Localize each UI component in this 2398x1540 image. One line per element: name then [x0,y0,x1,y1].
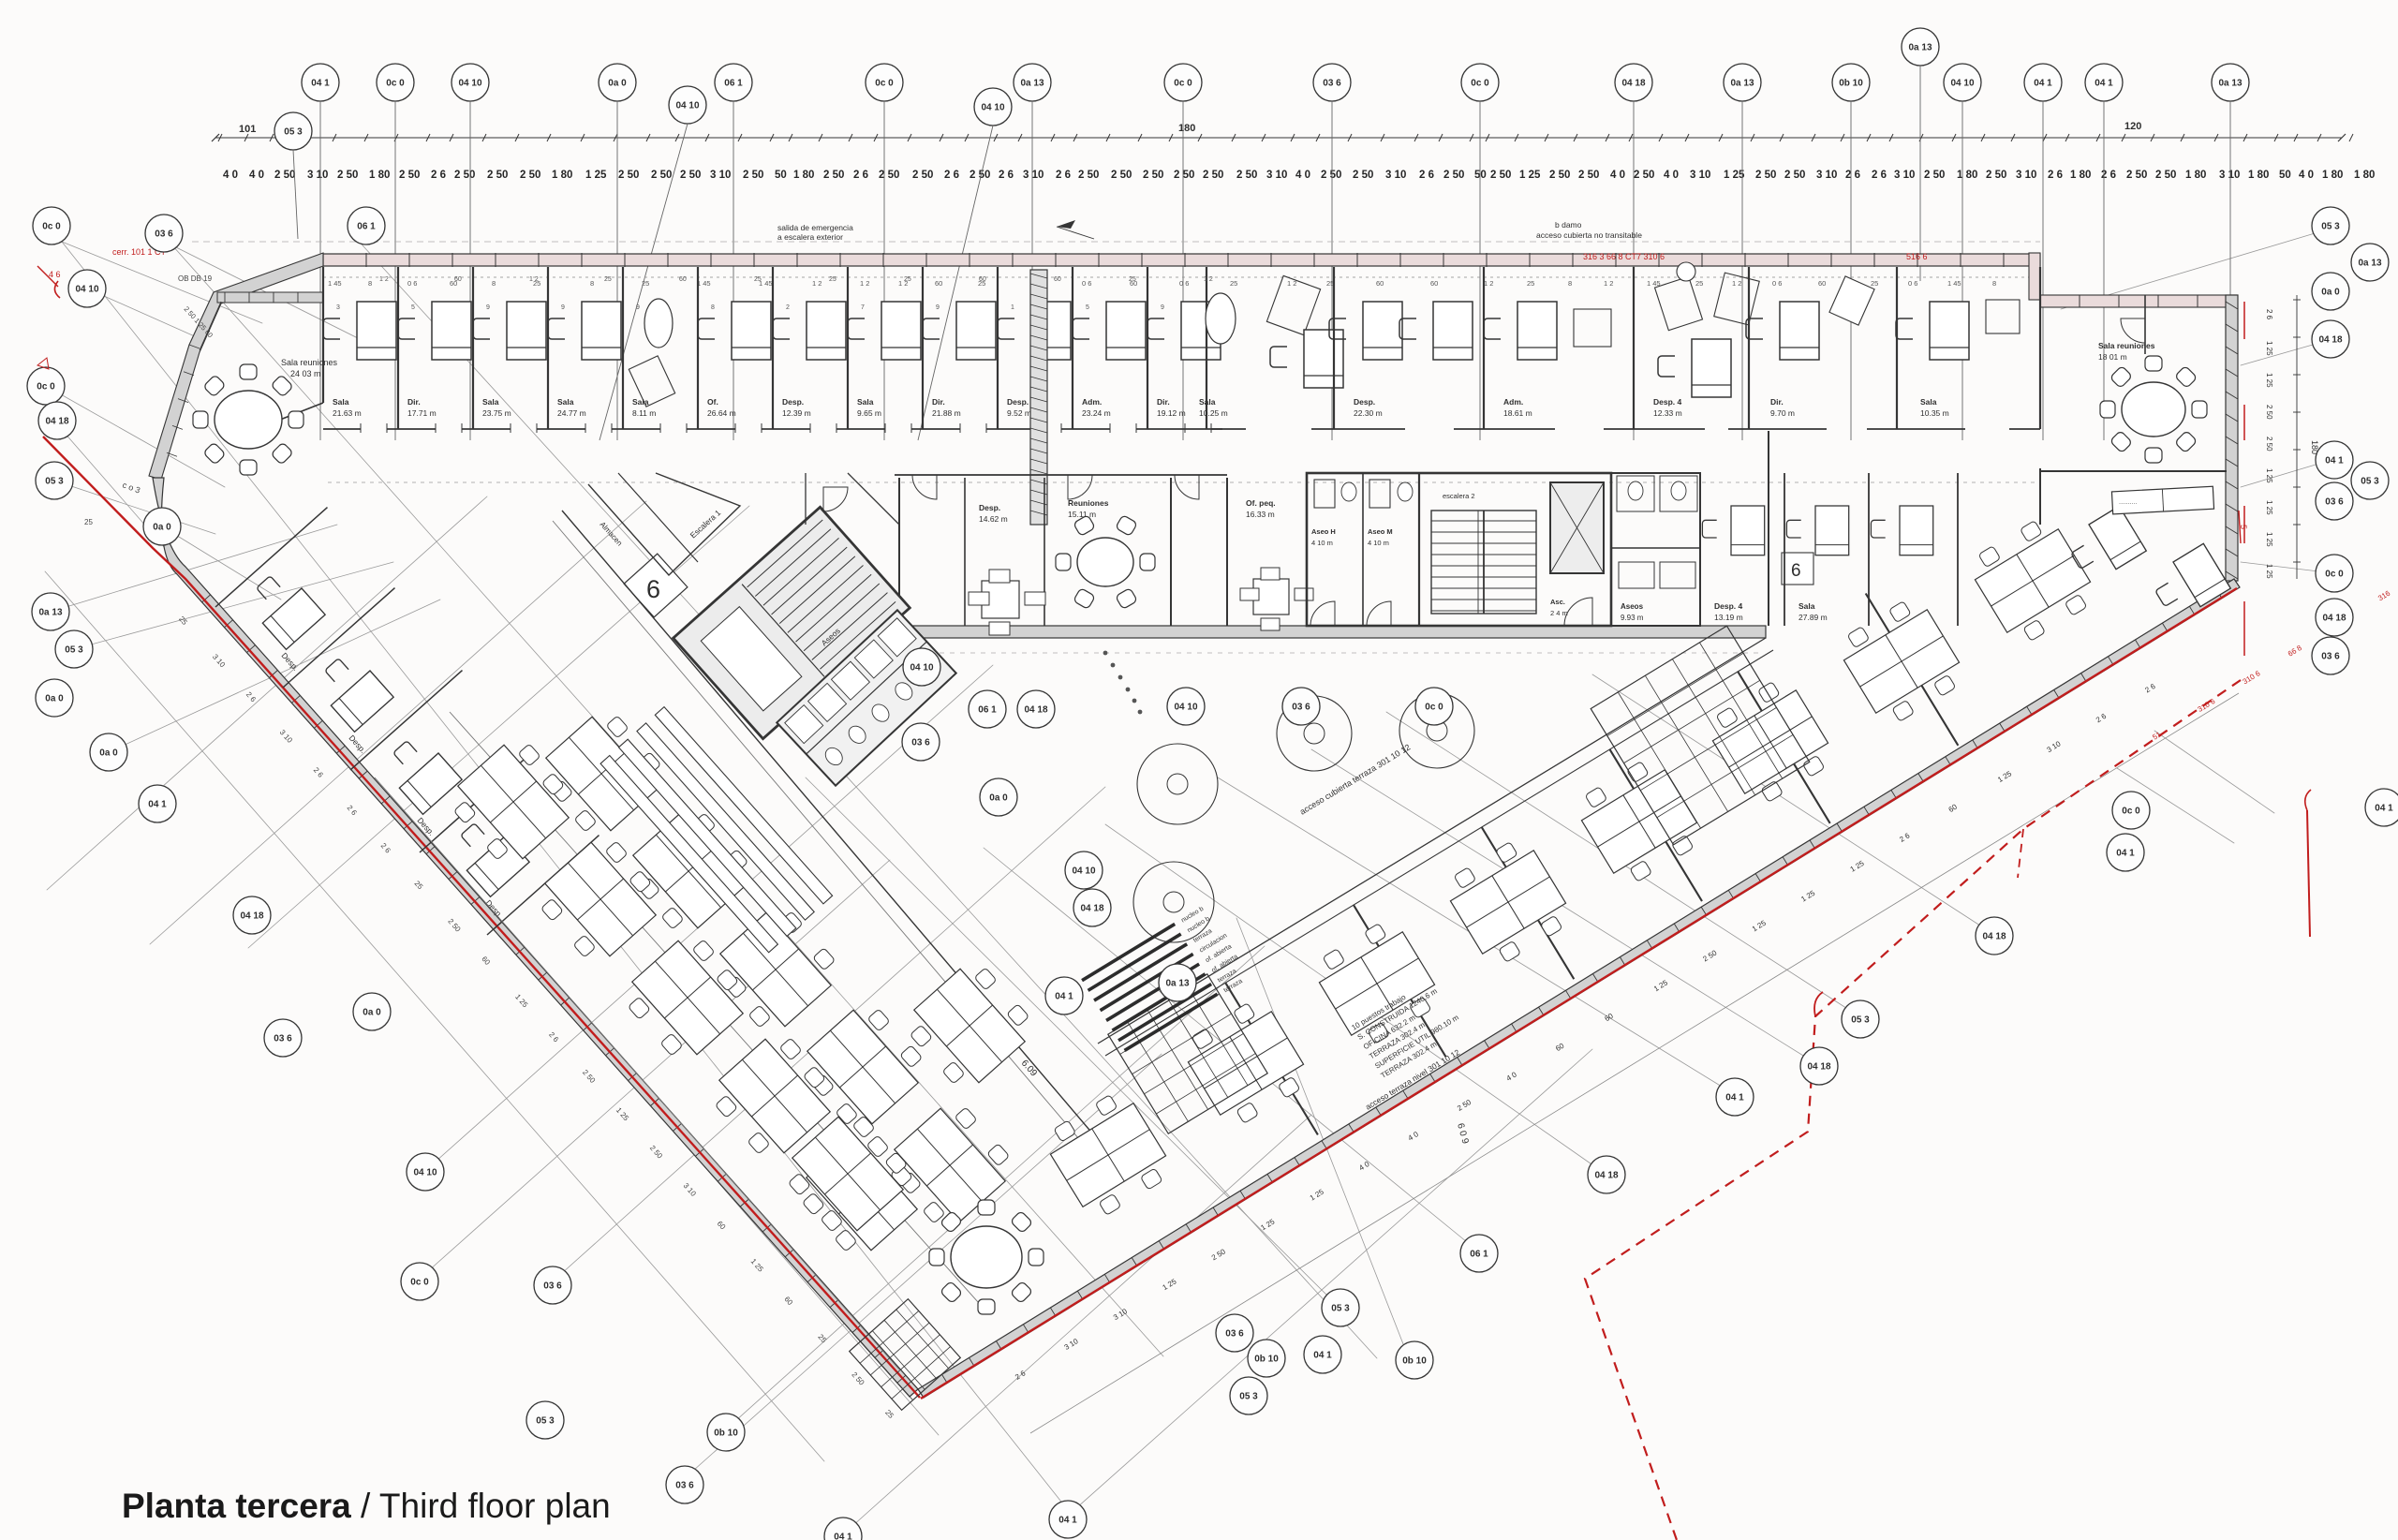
svg-text:03 6: 03 6 [2321,652,2340,662]
svg-text:2 50: 2 50 [879,170,899,181]
svg-text:27.89 m: 27.89 m [1798,613,1828,622]
svg-text:21.88 m: 21.88 m [932,408,961,418]
svg-text:Desp. 4: Desp. 4 [1653,397,1682,407]
svg-text:04 18: 04 18 [2318,335,2342,346]
svg-text:6: 6 [646,575,660,603]
svg-text:2: 2 [786,304,790,311]
svg-text:60: 60 [1054,276,1061,283]
svg-text:OB DB 19: OB DB 19 [178,274,213,283]
svg-text:60: 60 [935,279,942,288]
svg-text:Desp.: Desp. [782,397,804,407]
svg-text:19.12 m: 19.12 m [1157,408,1186,418]
svg-text:Aseo H: Aseo H [1311,527,1336,536]
svg-text:18 01 m: 18 01 m [2098,352,2127,362]
svg-text:2 6: 2 6 [431,170,446,181]
svg-text:17.71 m: 17.71 m [407,408,437,418]
svg-text:04 10: 04 10 [458,79,481,89]
svg-text:04 10: 04 10 [1174,703,1197,713]
svg-text:04 18: 04 18 [1080,904,1103,914]
svg-text:8: 8 [492,279,496,288]
svg-text:60: 60 [1376,279,1384,288]
svg-text:1 80: 1 80 [2185,170,2206,181]
svg-text:0c 0: 0c 0 [42,222,61,232]
svg-text:9.52 m: 9.52 m [1007,408,1031,418]
svg-text:04 10: 04 10 [675,101,699,111]
svg-text:04 10: 04 10 [1950,79,1974,89]
svg-text:05 3: 05 3 [65,645,83,656]
svg-text:25: 25 [1129,276,1136,283]
svg-text:2 50: 2 50 [2265,437,2273,452]
svg-text:05 3: 05 3 [2321,222,2340,232]
svg-text:05 3: 05 3 [1331,1304,1350,1314]
svg-text:2 50: 2 50 [1078,170,1099,181]
svg-text:04 18: 04 18 [1982,932,2006,942]
svg-text:03 6: 03 6 [1323,79,1341,89]
svg-text:0b 10: 0b 10 [1254,1355,1279,1365]
svg-text:23.75 m: 23.75 m [482,408,511,418]
svg-text:8: 8 [590,279,594,288]
svg-text:Sala: Sala [1199,397,1216,407]
svg-text:0c 0: 0c 0 [386,79,405,89]
svg-text:4 0: 4 0 [249,170,264,181]
svg-text:4 10 m: 4 10 m [1368,539,1389,547]
svg-text:Adm.: Adm. [1082,397,1102,407]
svg-text:Sala: Sala [1798,601,1815,611]
svg-text:2 6: 2 6 [1419,170,1434,181]
svg-text:2 50: 2 50 [399,170,420,181]
svg-text:14.62 m: 14.62 m [979,514,1008,524]
svg-text:04 10: 04 10 [981,103,1004,113]
svg-text:1 25: 1 25 [1519,170,1541,181]
svg-text:1 45: 1 45 [328,279,342,288]
svg-text:25: 25 [904,276,911,283]
svg-text:0a 13: 0a 13 [38,608,62,618]
svg-text:4 0: 4 0 [2299,170,2314,181]
svg-text:2 50: 2 50 [1755,170,1776,181]
svg-text:1 25: 1 25 [2265,500,2273,515]
svg-text:1 25: 1 25 [2265,468,2273,483]
svg-text:50: 50 [775,170,787,181]
svg-text:04 1: 04 1 [1725,1093,1744,1103]
svg-text:Desp. 4: Desp. 4 [1714,601,1743,611]
svg-text:Desp.: Desp. [1354,397,1375,407]
svg-text:25: 25 [604,276,612,283]
svg-text:2 6: 2 6 [2101,170,2116,181]
svg-text:Sala reuniones: Sala reuniones [281,358,338,367]
svg-text:Of.: Of. [707,397,718,407]
svg-text:1 25: 1 25 [1724,170,1745,181]
svg-text:1 80: 1 80 [2322,170,2343,181]
svg-text:2 50: 2 50 [2155,170,2176,181]
svg-text:9: 9 [561,304,565,311]
svg-text:Sala reuniones: Sala reuniones [2098,341,2155,350]
svg-text:Aseo M: Aseo M [1368,527,1393,536]
svg-text:9: 9 [486,304,490,311]
svg-text:60: 60 [1818,279,1826,288]
svg-text:1 25: 1 25 [585,170,607,181]
svg-text:101: 101 [239,124,256,135]
svg-text:9.65 m: 9.65 m [857,408,881,418]
svg-text:04 1: 04 1 [2034,79,2052,89]
svg-text:1 25: 1 25 [2265,373,2273,388]
svg-text:2 6: 2 6 [853,170,868,181]
svg-text:0a 13: 0a 13 [1730,79,1754,89]
svg-text:Asc.: Asc. [1550,598,1565,606]
svg-text:3 10: 3 10 [1894,170,1915,181]
svg-text:2 50: 2 50 [1443,170,1464,181]
svg-text:04 18: 04 18 [240,911,263,922]
svg-text:a escalera exterior: a escalera exterior [777,232,843,242]
svg-text:1 2: 1 2 [529,276,539,283]
svg-text:04 1: 04 1 [2116,849,2135,859]
svg-text:1 45: 1 45 [1947,279,1961,288]
svg-text:9: 9 [636,304,640,311]
svg-text:2 50: 2 50 [337,170,358,181]
svg-text:1 2: 1 2 [1484,279,1493,288]
svg-text:3 10: 3 10 [1690,170,1710,181]
svg-text:06 1: 06 1 [724,79,743,89]
svg-text:04 18: 04 18 [1594,1171,1618,1181]
svg-text:9: 9 [936,304,940,311]
svg-text:03 6: 03 6 [543,1281,562,1292]
svg-text:4 6: 4 6 [49,270,61,279]
svg-text:03 6: 03 6 [1292,703,1310,713]
svg-text:8: 8 [368,279,372,288]
svg-text:2 50: 2 50 [1111,170,1132,181]
svg-text:2 50: 2 50 [1353,170,1373,181]
svg-text:04 1: 04 1 [2095,79,2113,89]
svg-text:04 1: 04 1 [1055,992,1073,1002]
svg-text:0b 10: 0b 10 [714,1429,738,1439]
svg-text:2 50: 2 50 [274,170,295,181]
svg-text:03 6: 03 6 [911,738,930,748]
svg-text:04 18: 04 18 [45,417,68,427]
svg-text:Sala: Sala [333,397,349,407]
svg-text:2 50: 2 50 [823,170,844,181]
svg-text:5: 5 [1086,304,1089,311]
svg-text:60: 60 [454,276,462,283]
svg-text:2 6: 2 6 [2048,170,2063,181]
svg-text:escalera 2: escalera 2 [1443,492,1475,500]
svg-text:25: 25 [1871,279,1878,288]
svg-text:2 50: 2 50 [1784,170,1805,181]
svg-text:1 80: 1 80 [1957,170,1977,181]
svg-text:Sala: Sala [482,397,499,407]
svg-text:0a 0: 0a 0 [608,79,627,89]
svg-text:2 50: 2 50 [454,170,475,181]
svg-text:2 50: 2 50 [487,170,508,181]
svg-text:1 80: 1 80 [793,170,814,181]
svg-text:180: 180 [1178,123,1195,134]
svg-text:b damo: b damo [1555,220,1582,230]
svg-text:0c 0: 0c 0 [1471,79,1489,89]
svg-text:4 0: 4 0 [223,170,238,181]
svg-text:2 6: 2 6 [944,170,959,181]
svg-text:03 6: 03 6 [274,1034,292,1044]
svg-text:2 6: 2 6 [1845,170,1860,181]
svg-text:0a 0: 0a 0 [989,793,1008,804]
svg-text:Desp.: Desp. [979,503,1000,512]
svg-text:25: 25 [1230,279,1237,288]
svg-text:1 80: 1 80 [369,170,390,181]
svg-text:50: 50 [2279,170,2291,181]
svg-text:120: 120 [2124,121,2141,132]
svg-text:3 10: 3 10 [1816,170,1837,181]
svg-text:8.11 m: 8.11 m [632,408,656,418]
svg-text:0 6: 0 6 [1772,279,1782,288]
svg-text:0c 0: 0c 0 [1425,703,1443,713]
svg-text:24 03 m: 24 03 m [290,369,321,378]
svg-text:1 25: 1 25 [2265,341,2273,356]
svg-text:Sala: Sala [857,397,874,407]
svg-text:2 50: 2 50 [520,170,540,181]
svg-text:13.19 m: 13.19 m [1714,613,1743,622]
svg-text:0a 0: 0a 0 [45,694,64,704]
svg-text:05 3: 05 3 [1239,1392,1258,1402]
svg-text:06 1: 06 1 [1470,1250,1488,1260]
svg-text:2 50: 2 50 [1490,170,1511,181]
svg-text:60: 60 [1430,279,1438,288]
svg-text:04 1: 04 1 [2375,804,2393,814]
svg-text:1 2: 1 2 [860,279,869,288]
svg-text:05 3: 05 3 [1851,1015,1870,1026]
svg-text:Dir.: Dir. [1770,397,1784,407]
svg-text:1 80: 1 80 [2070,170,2091,181]
svg-text:0a 13: 0a 13 [1165,979,1189,989]
svg-text:03 6: 03 6 [675,1481,694,1491]
svg-text:04 18: 04 18 [1621,79,1645,89]
svg-text:06 1: 06 1 [978,705,997,716]
svg-text:25: 25 [829,276,836,283]
svg-text:04 10: 04 10 [910,663,933,674]
svg-text:4 0: 4 0 [1295,170,1310,181]
svg-text:2 50: 2 50 [651,170,672,181]
svg-text:04 10: 04 10 [75,285,98,295]
svg-text:Of. peq.: Of. peq. [1246,498,1276,508]
svg-text:25: 25 [84,518,93,526]
svg-text:3 10: 3 10 [307,170,328,181]
svg-text:0b 10: 0b 10 [1402,1356,1427,1367]
svg-text:04 1: 04 1 [1313,1351,1332,1361]
svg-text:2 50: 2 50 [1549,170,1570,181]
svg-text:3: 3 [336,304,340,311]
svg-text:0a 13: 0a 13 [2218,79,2242,89]
svg-text:0a 13: 0a 13 [2358,259,2381,269]
svg-text:3 10: 3 10 [1266,170,1287,181]
svg-text:316 3 66 8 CT7 310 6: 316 3 66 8 CT7 310 6 [1583,252,1665,261]
svg-text:Reuniones: Reuniones [1068,498,1109,508]
svg-text:05 3: 05 3 [2361,477,2379,487]
svg-text:2 50: 2 50 [1143,170,1163,181]
svg-text:25: 25 [754,276,762,283]
svg-text:0a 0: 0a 0 [2321,288,2340,298]
svg-text:03 6: 03 6 [2325,497,2344,508]
svg-text:2 50: 2 50 [912,170,933,181]
svg-text:0a 0: 0a 0 [363,1008,381,1018]
svg-text:0c 0: 0c 0 [1174,79,1192,89]
svg-text:2 50: 2 50 [1321,170,1341,181]
svg-text:2 50: 2 50 [1924,170,1945,181]
svg-text:26.64 m: 26.64 m [707,408,736,418]
svg-text:1 2: 1 2 [812,279,822,288]
svg-text:0c 0: 0c 0 [2325,570,2344,580]
svg-text:1 25: 1 25 [2265,532,2273,547]
svg-text:04 1: 04 1 [2325,456,2344,466]
svg-text:04 1: 04 1 [834,1533,852,1540]
svg-text:04 18: 04 18 [1024,705,1047,716]
svg-text:8: 8 [1992,279,1996,288]
svg-text:Sala: Sala [632,397,649,407]
svg-text:03 6: 03 6 [1225,1329,1244,1340]
svg-text:03 6: 03 6 [155,230,173,240]
svg-text:Dir.: Dir. [1157,397,1170,407]
svg-text:04 18: 04 18 [2322,614,2346,624]
svg-text:1 80: 1 80 [2248,170,2269,181]
svg-text:05 3: 05 3 [45,477,64,487]
svg-text:2 50: 2 50 [1203,170,1223,181]
svg-text:22.30 m: 22.30 m [1354,408,1383,418]
svg-text:2 50: 2 50 [680,170,701,181]
svg-text:3 10: 3 10 [2016,170,2036,181]
svg-text:3 10: 3 10 [2219,170,2240,181]
svg-text:8: 8 [711,304,715,311]
svg-text:2 4 m: 2 4 m [1550,609,1568,617]
svg-text:2 6: 2 6 [2265,309,2273,320]
svg-text:18.61 m: 18.61 m [1503,408,1532,418]
svg-text:0a 13: 0a 13 [1908,43,1932,53]
svg-text:Dir.: Dir. [932,397,945,407]
svg-text:0c 0: 0c 0 [2122,807,2140,817]
svg-text:5: 5 [411,304,415,311]
svg-text:10.35 m: 10.35 m [1920,408,1949,418]
svg-text:9.93 m: 9.93 m [1621,614,1644,622]
svg-text:9: 9 [1161,304,1164,311]
svg-text:Aseos: Aseos [1621,602,1644,611]
svg-text:06 1: 06 1 [357,222,376,232]
svg-text:2 50: 2 50 [1174,170,1194,181]
svg-text:21.63 m: 21.63 m [333,408,362,418]
svg-text:0c 0: 0c 0 [410,1278,429,1288]
svg-text:0a 0: 0a 0 [153,523,171,533]
svg-text:1 2: 1 2 [1732,279,1741,288]
svg-text:0 6: 0 6 [407,279,417,288]
svg-text:0a 13: 0a 13 [1020,79,1044,89]
svg-text:salida de emergencia: salida de emergencia [777,223,853,232]
svg-text:1 45: 1 45 [697,279,711,288]
svg-text:04 1: 04 1 [148,800,167,810]
svg-text:12.33 m: 12.33 m [1653,408,1682,418]
svg-text:1 80: 1 80 [2354,170,2375,181]
svg-text:15.11 m: 15.11 m [1068,510,1096,519]
svg-text:10.25 m: 10.25 m [1199,408,1228,418]
svg-text:2 50: 2 50 [2126,170,2147,181]
svg-text:3 10: 3 10 [1023,170,1044,181]
svg-text:04 18: 04 18 [1807,1062,1830,1073]
svg-text:0b 10: 0b 10 [1839,79,1863,89]
svg-text:Sala: Sala [1920,397,1937,407]
svg-text:8: 8 [1568,279,1572,288]
svg-text:Planta tercera / Third floor p: Planta tercera / Third floor plan [122,1487,611,1525]
svg-text:6: 6 [1791,561,1801,581]
svg-text:0 6: 0 6 [1908,279,1917,288]
svg-text:2 50: 2 50 [1634,170,1654,181]
svg-text:0 6: 0 6 [1179,279,1189,288]
svg-text:4 10 m: 4 10 m [1311,539,1333,547]
svg-text:acceso cubierta no transitable: acceso cubierta no transitable [1536,230,1642,240]
svg-text:25: 25 [1695,279,1703,288]
svg-text:3 10: 3 10 [1385,170,1406,181]
svg-text:05 3: 05 3 [284,127,303,138]
svg-text:1 80: 1 80 [552,170,572,181]
svg-text:516 6: 516 6 [1906,252,1928,261]
svg-text:2 50: 2 50 [2265,405,2273,420]
svg-text:4 0: 4 0 [1664,170,1679,181]
svg-text:1 2: 1 2 [379,276,389,283]
svg-text:7: 7 [861,304,865,311]
svg-text:4 0: 4 0 [1610,170,1625,181]
svg-text:2 50: 2 50 [1986,170,2006,181]
svg-text:1 25: 1 25 [2265,564,2273,579]
svg-text:24.77 m: 24.77 m [557,408,586,418]
svg-text:60: 60 [979,276,986,283]
svg-text:23.24 m: 23.24 m [1082,408,1111,418]
svg-text:05 3: 05 3 [536,1416,555,1427]
svg-text:Dir.: Dir. [407,397,421,407]
svg-text:2 6: 2 6 [1056,170,1071,181]
svg-text:04 1: 04 1 [311,79,330,89]
svg-text:2 50: 2 50 [743,170,763,181]
svg-text:2 50: 2 50 [1578,170,1599,181]
svg-text:1: 1 [1011,304,1014,311]
svg-text:2 50: 2 50 [618,170,639,181]
svg-text:1 2: 1 2 [1604,279,1613,288]
svg-text:0c 0: 0c 0 [875,79,894,89]
svg-text:3 10: 3 10 [710,170,731,181]
svg-text:25: 25 [1527,279,1534,288]
svg-text:..........: .......... [2119,499,2138,506]
svg-text:Adm.: Adm. [1503,397,1523,407]
svg-text:04 1: 04 1 [1058,1516,1077,1526]
svg-text:04 10: 04 10 [1072,866,1095,877]
svg-text:0 6: 0 6 [1082,279,1091,288]
svg-text:Sala: Sala [557,397,574,407]
svg-text:0c 0: 0c 0 [37,382,55,392]
svg-text:2 6: 2 6 [999,170,1014,181]
svg-text:2 50: 2 50 [1236,170,1257,181]
svg-text:2 6: 2 6 [1872,170,1887,181]
svg-text:1 2: 1 2 [1204,276,1213,283]
svg-text:16.33 m: 16.33 m [1246,510,1275,519]
svg-text:9.70 m: 9.70 m [1770,408,1795,418]
svg-text:0a 0: 0a 0 [99,748,118,759]
svg-text:04 10: 04 10 [413,1168,437,1178]
svg-text:12.39 m: 12.39 m [782,408,811,418]
svg-text:60: 60 [679,276,687,283]
